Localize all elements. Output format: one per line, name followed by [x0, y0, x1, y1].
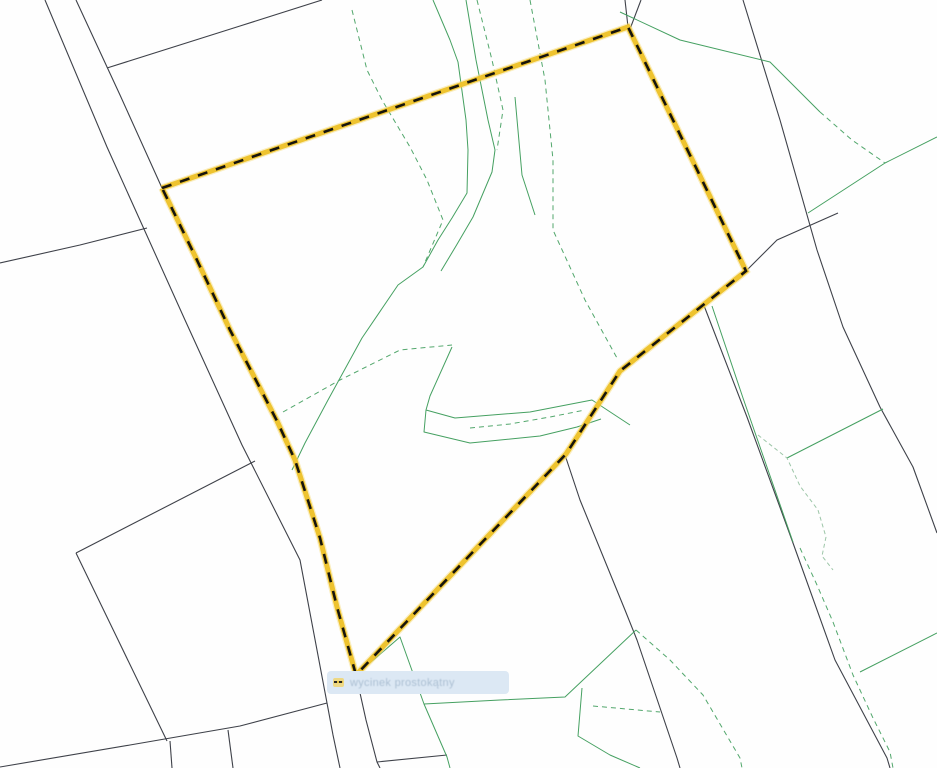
selection-band	[162, 27, 746, 675]
selected-parcel-boundary[interactable]	[162, 27, 746, 675]
selection-dash-overlay	[162, 27, 746, 675]
parcel-boundary-lines	[0, 0, 937, 768]
parcel-lines	[0, 0, 937, 768]
map-viewport[interactable]: wycinek prostokątny	[0, 0, 937, 768]
selection-glow	[162, 27, 746, 675]
cadastral-map-canvas[interactable]	[0, 0, 937, 768]
